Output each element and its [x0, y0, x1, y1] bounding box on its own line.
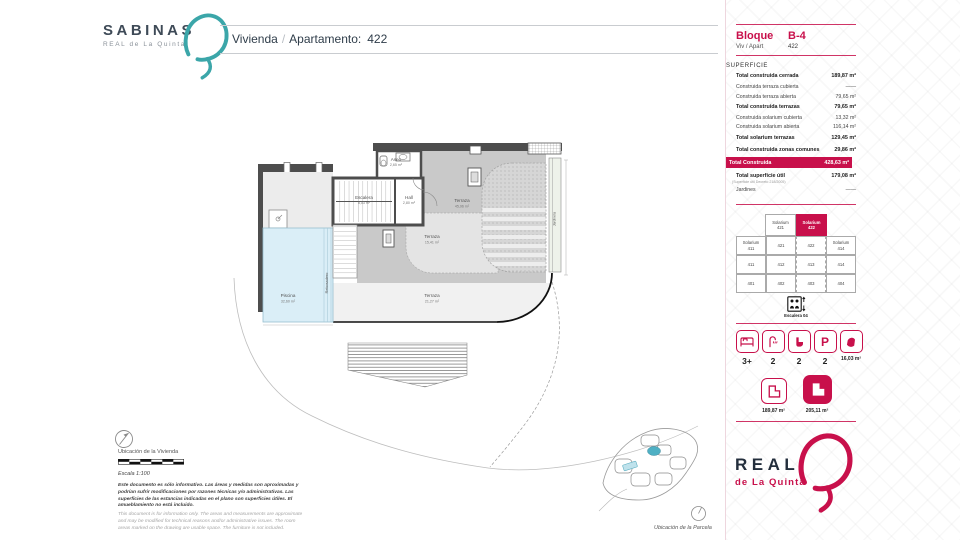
- label-escalera: Escalera: [355, 195, 373, 200]
- row-value: 13,32 m²: [836, 116, 856, 122]
- ubicacion-parcela-label: Ubicación de la Parcela: [654, 525, 712, 531]
- grid-cell-404: 404: [826, 274, 856, 293]
- title-vivienda: Vivienda: [232, 32, 278, 46]
- document-title: Vivienda/Apartamento:422: [232, 32, 387, 46]
- grid-cell-solarium-411: Solarium 411: [736, 236, 766, 255]
- grid-cell-solarium-421: Solarium 421: [765, 214, 796, 236]
- sidebar-divider: [736, 204, 856, 205]
- feature-value: 16,03 m²: [841, 356, 861, 362]
- real-quinta-q-icon: [792, 420, 854, 520]
- label-aseo: Aseo: [391, 157, 402, 162]
- cell-line: 401: [748, 281, 755, 287]
- cell-line: 421: [777, 225, 784, 231]
- floorplan-outline-icon: [761, 378, 787, 404]
- cell-line: 412: [778, 262, 785, 268]
- louver-slats: [348, 343, 467, 387]
- row-label: Construida terraza abierta: [736, 95, 796, 101]
- grid-cell-422: 422: [796, 236, 826, 255]
- feature-storage: 16,03 m²: [840, 330, 862, 366]
- feature-parking: P 2: [814, 330, 836, 366]
- grid-cell-413: 413: [796, 255, 826, 274]
- superficie-title: SUPERFICIE: [726, 63, 846, 69]
- total-area-badge: 205,11 m²: [803, 375, 832, 414]
- label-escalera-area: 8,03 m²: [358, 201, 371, 205]
- escalera-04-label: Escalera 04: [784, 313, 808, 318]
- bloque-label: Bloque: [736, 30, 788, 42]
- cell-line: 402: [778, 281, 785, 287]
- storage-icon: [840, 330, 863, 353]
- scale-label: Escala 1:100: [118, 471, 150, 477]
- surface-row: Construida terraza abierta 79,65 m²: [736, 95, 856, 101]
- viv-apart-label: Viv / Apart: [736, 44, 788, 50]
- feature-value: 2: [797, 356, 802, 366]
- row-label: Construida solarium abierta: [736, 125, 799, 131]
- title-apartamento: Apartamento:: [289, 32, 361, 46]
- util-row: Total superficie útil 179,08 m²: [736, 173, 856, 179]
- scale-bar: [118, 459, 184, 465]
- util-label: Total superficie útil: [736, 173, 785, 179]
- pool-deck: [263, 172, 333, 228]
- parcela-compass-icon: [690, 505, 707, 522]
- pool: [263, 228, 333, 325]
- title-number: 422: [361, 32, 387, 46]
- label-piscina-area: 32,60 m²: [281, 300, 296, 304]
- bloque-row: Bloque B-4: [736, 30, 856, 42]
- cell-line: 422: [808, 243, 815, 249]
- label-jardinera: Jardinera: [553, 212, 557, 226]
- row-value: 29,86 m²: [834, 147, 856, 153]
- plan-sheet: SABINAS REAL de La Quinta Vivienda/Apart…: [0, 0, 960, 540]
- feature-toilets: 2: [788, 330, 810, 366]
- unit-location-grid: Solarium 421 Solarium 422 Solarium 411 4…: [736, 214, 856, 293]
- viv-apart-row: Viv / Apart 422: [736, 44, 856, 50]
- feature-value: 3+: [742, 356, 752, 366]
- row-label: Construida solarium cubierta: [736, 116, 802, 122]
- grid-cell-solarium-422-highlight: Solarium 422: [796, 214, 827, 236]
- jardines-row: Jardines ——: [736, 188, 856, 194]
- grid-cell-empty: [736, 214, 765, 234]
- row-value: 79,65 m²: [834, 104, 856, 110]
- feature-showers: 2: [762, 330, 784, 366]
- feature-bedrooms: 3+: [736, 330, 758, 366]
- surface-row: Construida solarium abierta 116,14 m²: [736, 125, 856, 131]
- highlighted-building: [648, 447, 661, 456]
- feature-value: 2: [771, 356, 776, 366]
- surface-row: Total construida terrazas 79,65 m²: [736, 104, 856, 110]
- row-label: Total solarium terrazas: [736, 135, 795, 141]
- label-aseo-area: 2,65 m²: [390, 163, 403, 167]
- brand-q-icon: [178, 6, 230, 82]
- pergola-hatch: [480, 163, 548, 272]
- jardines-value: ——: [846, 188, 856, 194]
- title-rule-top: [220, 25, 718, 26]
- util-value: 179,08 m²: [831, 173, 856, 179]
- label-hall-area: 2,80 m²: [403, 201, 416, 205]
- cell-line: 413: [808, 262, 815, 268]
- row-value: ——: [846, 85, 856, 91]
- surface-row: Total solarium terrazas 129,45 m²: [736, 135, 856, 141]
- util-note: (Superficie útil Decreto 218/2005): [732, 180, 852, 184]
- cell-line: 421: [778, 243, 785, 249]
- grid-cell-411: 411: [736, 255, 766, 274]
- label-rebosadero: Rebosadero: [325, 273, 329, 294]
- sidebar-divider: [736, 323, 856, 324]
- cell-line: 404: [838, 281, 845, 287]
- viv-apart-value: 422: [788, 44, 798, 50]
- row-value: 129,45 m²: [831, 135, 856, 141]
- cell-line: 411: [748, 262, 755, 268]
- parking-glyph: P: [821, 336, 829, 348]
- ubicacion-vivienda-label: Ubicación de la Vivienda: [118, 449, 178, 455]
- built-area-badge: 189,87 m²: [761, 378, 787, 414]
- bloque-value: B-4: [788, 30, 806, 42]
- grid-cell-414: 414: [826, 255, 856, 274]
- title-separator: /: [278, 32, 289, 46]
- label-terraza-3-area: 21,27 m²: [425, 300, 440, 304]
- shower-icon: [762, 330, 785, 353]
- cell-line: 403: [808, 281, 815, 287]
- surface-row: Construida terraza cubierta ——: [736, 85, 856, 91]
- row-label: Total construida zonas comunes: [736, 147, 819, 153]
- grid-cell-solarium-414: Solarium 414: [826, 236, 856, 255]
- total-value: 428,63 m²: [824, 160, 849, 166]
- grid-cell-402: 402: [766, 274, 796, 293]
- cell-line: 414: [838, 246, 845, 252]
- grid-cell-421: 421: [766, 236, 796, 255]
- grid-cell-412: 412: [766, 255, 796, 274]
- label-terraza-2-area: 15,41 m²: [425, 241, 440, 245]
- row-label: Total construida cerrada: [736, 73, 799, 79]
- cell-line: 411: [748, 246, 755, 252]
- total-label: Total Construida: [729, 160, 771, 166]
- disclaimer-spanish: Este documento es sólo informativo. Las …: [118, 483, 306, 510]
- elevator-icon: [787, 296, 806, 312]
- sidebar-divider: [736, 55, 856, 56]
- cell-line: 422: [808, 225, 815, 231]
- surface-row: Construida solarium cubierta 13,32 m²: [736, 116, 856, 122]
- grid-cell-401: 401: [736, 274, 766, 293]
- label-terraza-3: Terraza: [424, 293, 440, 298]
- feature-row: 3+ 2 2 P 2: [736, 330, 864, 366]
- stair-lift-block: Escalera 04: [736, 296, 856, 318]
- row-value: 189,87 m²: [831, 73, 856, 79]
- bed-icon: [736, 330, 759, 353]
- label-terraza-2: Terraza: [424, 234, 440, 239]
- jardines-label: Jardines: [736, 188, 756, 194]
- row-value: 116,14 m²: [833, 125, 856, 131]
- floorplan-filled-icon: [803, 375, 832, 404]
- area-badge-row: 189,87 m² 205,11 m²: [736, 375, 856, 414]
- disclaimer-english: This document is for information only. T…: [118, 512, 306, 532]
- label-hall: Hall: [405, 195, 413, 200]
- feature-value: 2: [823, 356, 828, 366]
- cell-line: 414: [838, 262, 845, 268]
- grid-cell-empty: [827, 214, 856, 234]
- parking-icon: P: [814, 330, 837, 353]
- badge-value: 205,11 m²: [806, 408, 829, 414]
- info-sidebar: Bloque B-4 Viv / Apart 422 SUPERFICIE To…: [725, 0, 960, 540]
- site-map: [597, 423, 712, 515]
- north-compass-icon: [113, 428, 135, 450]
- label-terraza-1: Terraza: [454, 198, 470, 203]
- total-construida-bar: Total Construida 428,63 m²: [726, 157, 852, 168]
- title-rule-bottom: [220, 53, 718, 54]
- row-label: Construida terraza cubierta: [736, 85, 799, 91]
- label-terraza-1-area: 45,96 m²: [455, 205, 470, 209]
- row-value: 79,65 m²: [836, 95, 856, 101]
- sidebar-divider: [736, 24, 856, 25]
- badge-value: 189,87 m²: [762, 408, 785, 414]
- row-label: Total construida terrazas: [736, 104, 800, 110]
- surface-row: Total construida cerrada 189,87 m²: [736, 73, 856, 79]
- toilet-icon: [788, 330, 811, 353]
- label-piscina: Piscina: [281, 293, 296, 298]
- surface-row: Total construida zonas comunes 29,86 m²: [736, 147, 856, 153]
- grid-cell-403: 403: [796, 274, 826, 293]
